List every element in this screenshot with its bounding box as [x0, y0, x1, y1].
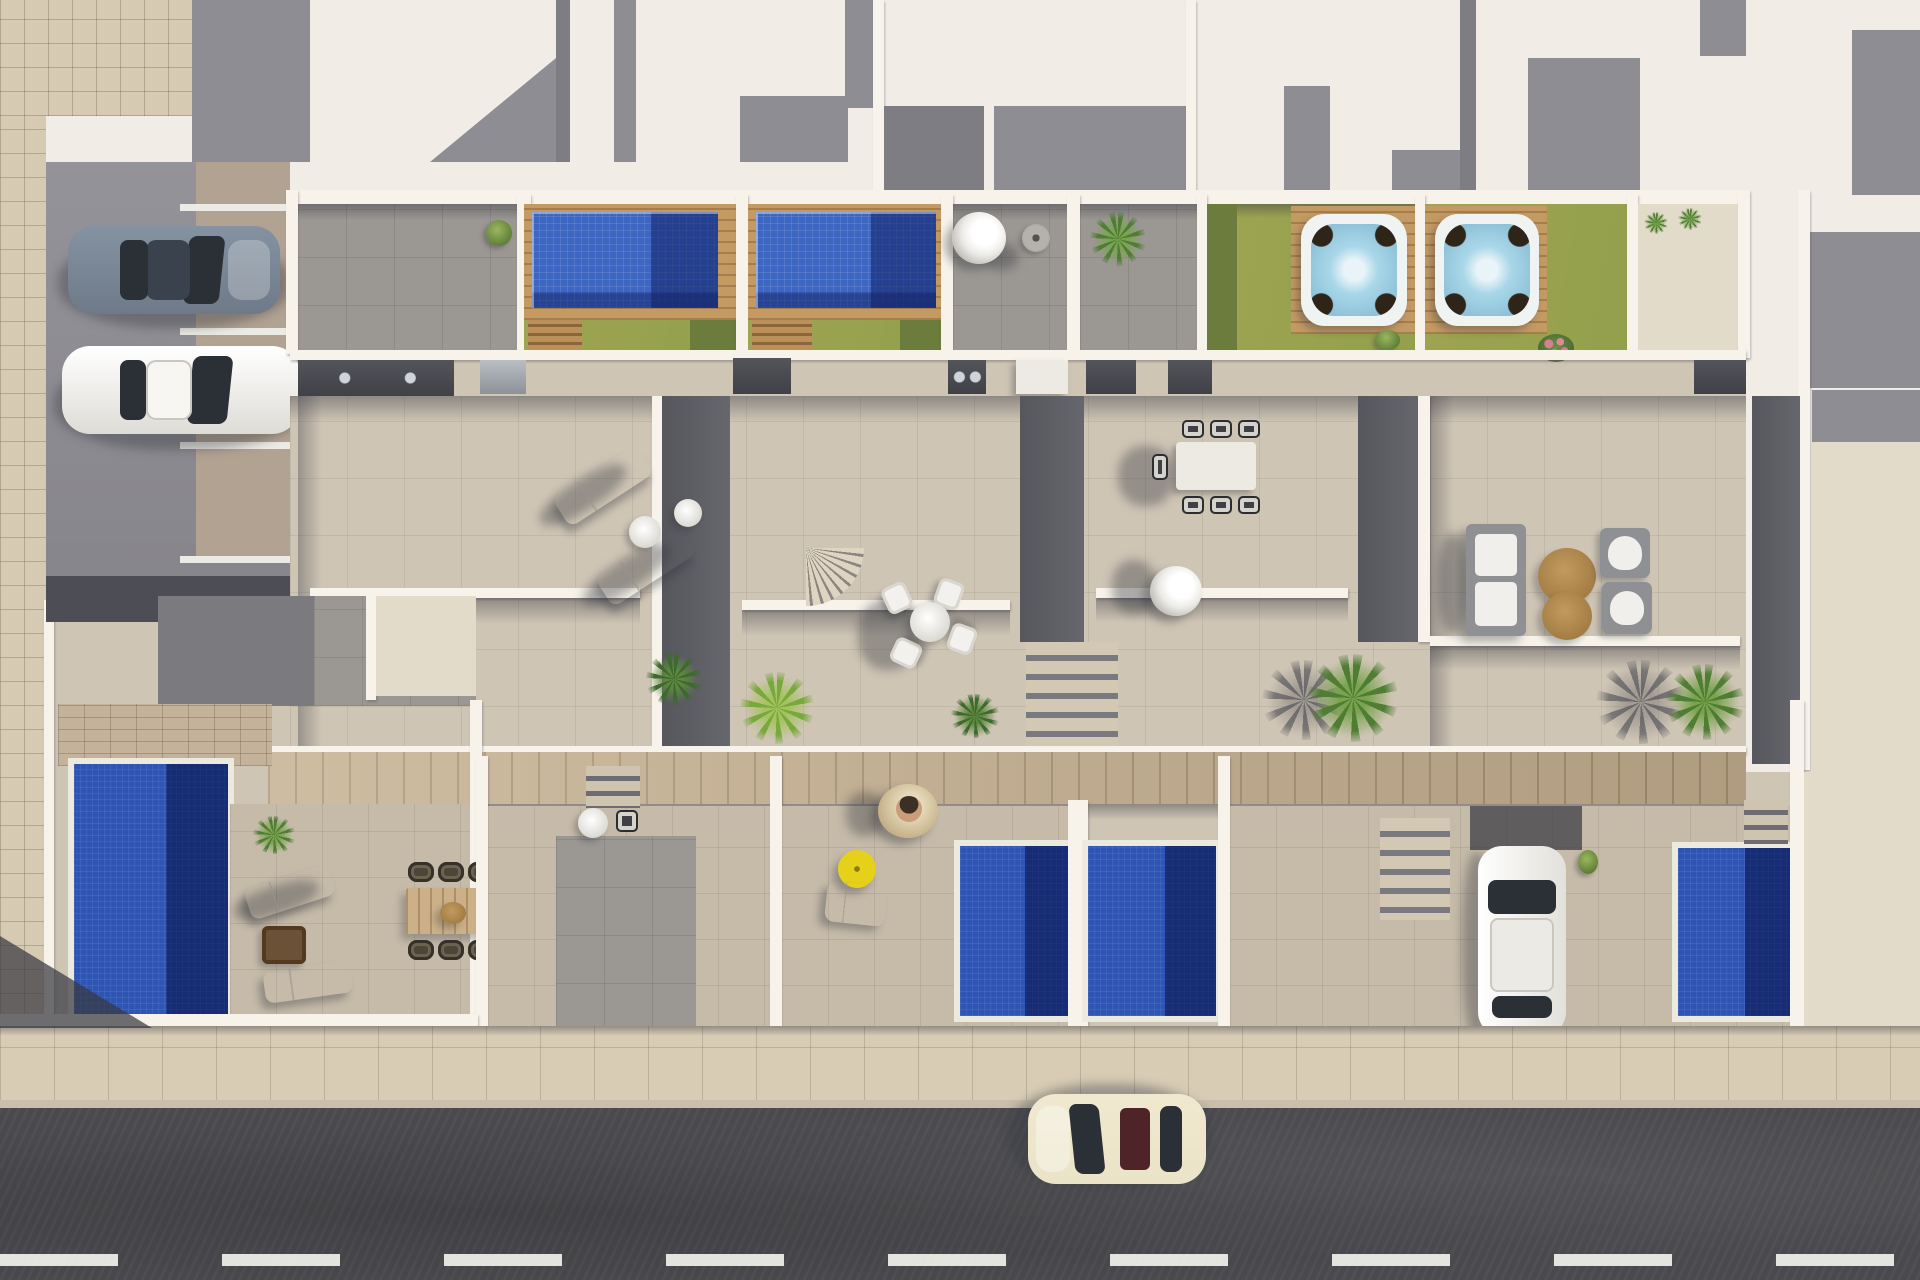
- carport-shadow: [1470, 806, 1582, 850]
- armchair: [1600, 528, 1650, 578]
- small-palm: [1678, 208, 1702, 230]
- coffee-table: [1542, 592, 1592, 640]
- aerial-render-scene: [0, 0, 1920, 1280]
- unit-wall: [1197, 194, 1207, 354]
- roof-shadow-block: [1528, 58, 1640, 195]
- garden-boundary-wall: [476, 756, 488, 1032]
- outdoor-kitchen-4: [1086, 360, 1136, 394]
- parking-stall-line: [180, 204, 290, 211]
- dining-chair: [1182, 420, 1204, 438]
- car-rear-window: [120, 360, 146, 420]
- roof-shadow-block: [1810, 232, 1920, 388]
- lawn-shadow: [690, 320, 736, 354]
- dining-chair: [1210, 496, 1232, 514]
- patio-palm: [1090, 212, 1146, 266]
- dining-chair: [1182, 496, 1204, 514]
- outdoor-kitchen-2: [733, 358, 791, 394]
- terrace-palm: [646, 652, 702, 706]
- garden-boundary-wall: [1790, 700, 1804, 1032]
- rooftop-pool-2: [756, 212, 936, 308]
- parking-stall-line: [180, 556, 290, 563]
- unit-wall: [1067, 194, 1080, 354]
- hanging-egg-chair: [952, 212, 1006, 264]
- roof-parapet-wall: [873, 0, 884, 194]
- fire-table: [262, 926, 306, 964]
- right-patio: [1812, 442, 1920, 772]
- lawn-shadow: [900, 320, 946, 354]
- roof-shadow-strip: [556, 0, 570, 162]
- wicker-chair: [438, 940, 464, 960]
- roof-shadow-block: [1812, 390, 1920, 442]
- garden-boundary-wall: [1068, 800, 1088, 1032]
- brick-paving: [58, 704, 272, 766]
- potted-shrub: [486, 220, 512, 246]
- unit-wall: [1415, 194, 1425, 354]
- parapet-shadow: [1080, 204, 1197, 220]
- car-hood-highlight: [1036, 1106, 1070, 1172]
- sofa-cushion: [1475, 534, 1517, 576]
- unit1-roof-patio: [298, 204, 517, 354]
- left-tile-walkway: [0, 116, 46, 1018]
- passage-shadow-strip: [662, 396, 730, 764]
- lower-parapet: [1430, 636, 1740, 646]
- units-top-parapet: [286, 190, 1746, 204]
- roof-shadow-block: [740, 96, 848, 162]
- unit-wall: [736, 194, 748, 354]
- roof-shadow-block: [192, 0, 310, 162]
- side-table: [629, 516, 661, 548]
- terrace-palm: [740, 672, 814, 744]
- armchair-cushion: [1608, 536, 1642, 570]
- timber-walkway: [268, 752, 1746, 804]
- outdoor-kitchen-5: [1694, 360, 1746, 394]
- street-car-cream: [1028, 1094, 1206, 1184]
- garden-staircase: [1380, 818, 1450, 920]
- terrace-divider-wall: [1418, 396, 1430, 642]
- rect-dining-table: [1176, 442, 1256, 490]
- roof-shadow-block: [994, 106, 1186, 195]
- car-windshield: [186, 356, 233, 424]
- terrace-left-shadow: [298, 396, 322, 764]
- corner-steps: [1744, 800, 1788, 844]
- armchair: [1602, 582, 1652, 634]
- hot-tub-2: [1435, 214, 1539, 326]
- timber-steps: [752, 320, 812, 354]
- timber-steps: [528, 320, 582, 354]
- garden-boundary-wall: [770, 756, 782, 1032]
- garden-a-gray-patio: [556, 836, 696, 1032]
- outdoor-kitchen-1: [298, 360, 454, 396]
- hanging-egg-chair: [1150, 566, 1202, 616]
- garden-steps: [586, 766, 640, 808]
- bistro-table: [578, 808, 608, 838]
- dining-chair: [1238, 496, 1260, 514]
- car-sunroof: [1120, 1108, 1150, 1170]
- table-centerpiece: [440, 902, 466, 924]
- outdoor-sofa: [1466, 524, 1526, 636]
- rooftop-pool-1: [532, 212, 718, 308]
- parked-car-white: [62, 346, 300, 434]
- corner-tile-walkway: [0, 0, 192, 116]
- garden-plant: [252, 816, 296, 854]
- roof-shadow-strip: [1460, 0, 1476, 195]
- driveway-car-white: [1478, 846, 1566, 1036]
- wicker-chair: [408, 940, 434, 960]
- sidewalk-shadow: [0, 1026, 1920, 1036]
- roof-shadow-block: [1392, 150, 1460, 195]
- bistro-chair: [616, 810, 638, 832]
- kitchen-cabinet: [1168, 360, 1212, 394]
- mid-parapet: [290, 350, 1746, 360]
- roof-shadow-block: [1284, 86, 1330, 195]
- car-windshield: [1068, 1104, 1105, 1174]
- hot-tub-water: [1444, 224, 1529, 316]
- car-windshield: [1488, 880, 1556, 914]
- garden-pool-middle-2: [1088, 846, 1216, 1016]
- garden-pool-left: [74, 764, 228, 1016]
- hot-tub-water: [1311, 224, 1398, 316]
- roof-shadow-block: [884, 106, 984, 195]
- lane-marking-dashes: [0, 1254, 1920, 1266]
- garden-structure: [376, 596, 476, 696]
- terrace-palm: [1666, 664, 1744, 740]
- unit-wall: [286, 190, 298, 354]
- sidewalk: [0, 1026, 1920, 1102]
- outdoor-kitchen-3: [948, 360, 986, 394]
- parapet-shadow: [298, 204, 517, 220]
- parked-car-gray: [68, 226, 280, 314]
- round-dining-table: [910, 602, 950, 642]
- kitchen-island: [1016, 360, 1068, 394]
- passage-shadow-strip: [1358, 396, 1418, 642]
- garden-pool-right: [1678, 848, 1790, 1016]
- lawn-shadow: [1207, 204, 1237, 354]
- garden-wall: [366, 596, 376, 700]
- sofa-shadow: [1438, 534, 1468, 634]
- dining-chair: [1152, 454, 1168, 480]
- passage-shadow-strip: [1020, 396, 1084, 642]
- garden-boundary-wall: [44, 600, 54, 1016]
- wicker-chair: [408, 862, 434, 882]
- hot-tub-1: [1301, 214, 1407, 326]
- car-rear-window: [1492, 996, 1552, 1018]
- right-ground-patio: [1804, 772, 1920, 1032]
- terrace-palm: [950, 694, 1000, 738]
- person-in-chair: [896, 796, 922, 822]
- roof-shadow-strip: [845, 0, 873, 108]
- dining-chair: [1238, 420, 1260, 438]
- roof-shadow-block: [1852, 30, 1920, 195]
- car-hood-highlight: [228, 240, 270, 300]
- unit-wall: [1738, 190, 1750, 358]
- parking-stall-line: [180, 328, 290, 335]
- fire-bowl: [1022, 224, 1050, 252]
- terrace-palm: [1308, 654, 1398, 742]
- ball-lamp: [674, 499, 702, 527]
- roof-shadow-strip: [614, 0, 636, 162]
- car-roof: [146, 240, 190, 300]
- garden-boundary-wall: [1218, 756, 1230, 1032]
- roof-parapet-wall: [1186, 0, 1196, 194]
- bbq-grill: [480, 360, 526, 394]
- car-rear-window: [120, 240, 148, 300]
- car-rear-window: [1160, 1106, 1182, 1172]
- unit-wall: [1627, 194, 1638, 354]
- armchair-cushion: [1610, 591, 1644, 625]
- wicker-chair: [438, 862, 464, 882]
- small-palm: [1644, 212, 1668, 234]
- terrace-top-shadow: [290, 396, 1746, 422]
- lawn-shrub: [1376, 330, 1400, 350]
- roof-shadow-block: [1700, 0, 1746, 56]
- terrace-band: [290, 396, 1746, 764]
- garden-sapling: [1578, 850, 1598, 874]
- lower-left-dark-patio: [158, 596, 314, 706]
- garden-lounger: [824, 881, 888, 927]
- car-roof: [1490, 918, 1554, 992]
- dining-chair: [1210, 420, 1232, 438]
- car-roof: [146, 360, 192, 420]
- garden-pool-middle-1: [960, 846, 1068, 1016]
- unit-wall: [941, 194, 953, 354]
- sofa-cushion: [1475, 582, 1517, 626]
